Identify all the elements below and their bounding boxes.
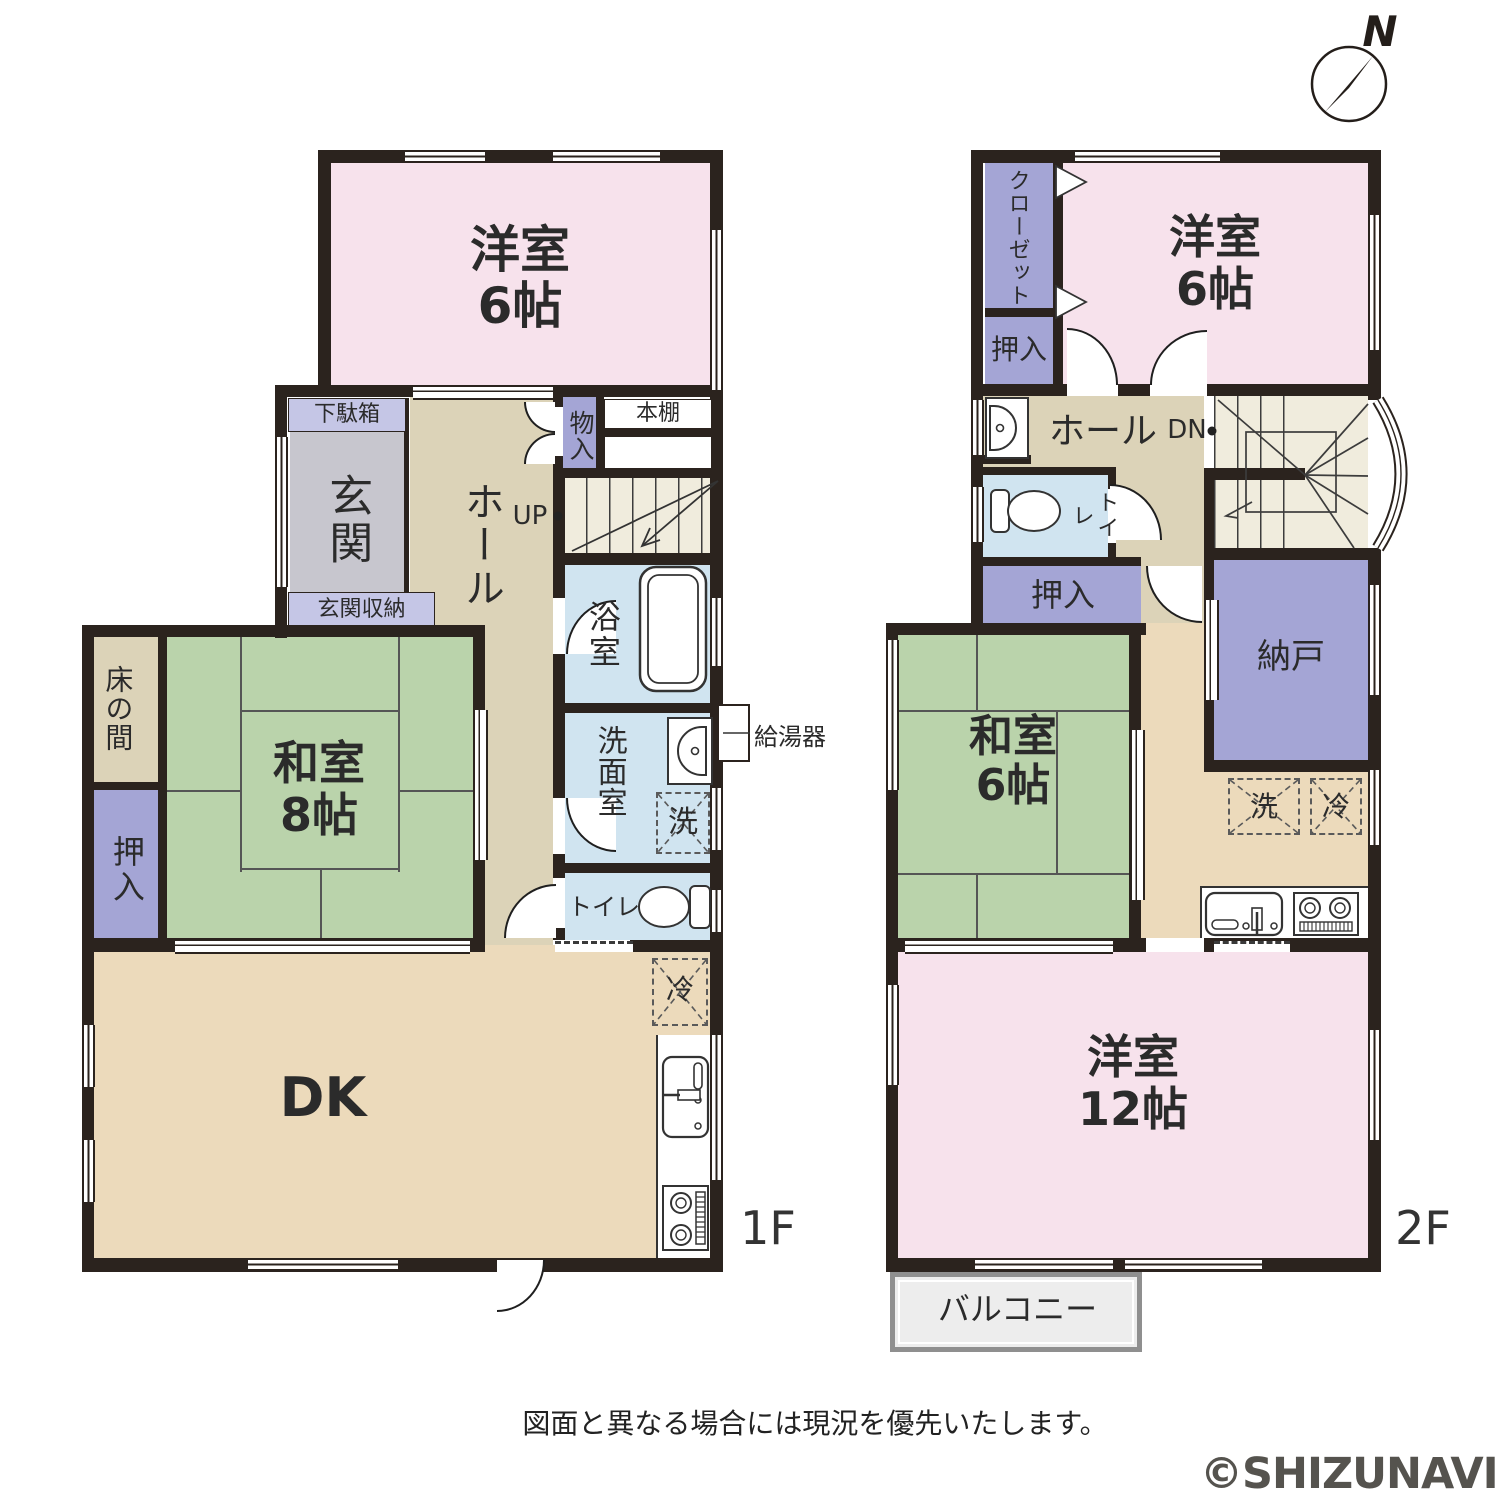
sliding-door <box>1130 730 1145 900</box>
wall <box>553 385 723 397</box>
window <box>1368 215 1381 350</box>
window <box>1368 585 1381 695</box>
room-label-dk: DK <box>268 1068 378 1128</box>
room-label-washitsu8: 和室 8帖 <box>229 738 409 841</box>
window <box>710 230 723 390</box>
room-1f-dk <box>94 945 710 1258</box>
wall <box>318 385 418 397</box>
stairs-1f-treads <box>563 478 710 553</box>
room-label-balcony: バルコニー <box>925 1292 1110 1328</box>
washer-label-1f: 洗 <box>656 806 710 840</box>
wall <box>985 308 1053 317</box>
entrance-window <box>275 437 288 587</box>
window <box>971 400 984 455</box>
window <box>710 1035 723 1180</box>
wall <box>158 630 167 940</box>
wall <box>563 863 710 873</box>
window <box>710 598 723 666</box>
room-label-hondana: 本棚 <box>606 402 710 427</box>
stair-closet-box <box>604 436 712 469</box>
wall <box>1204 760 1381 772</box>
water-heater-label: 給湯器 <box>754 724 864 751</box>
stairs-2f-treads <box>1214 480 1306 548</box>
room-label-hall-1f: ホール <box>458 455 503 635</box>
room-label-nando: 納戸 <box>1233 638 1349 676</box>
tatami-line <box>320 870 322 938</box>
room-label-getabako: 下駄箱 <box>290 403 404 428</box>
stairs-2f-treads <box>1214 396 1306 468</box>
wall <box>563 703 710 713</box>
wall <box>983 557 1141 566</box>
sliding-door <box>473 710 488 860</box>
room-label-oshiire-top-2f: 押入 <box>983 334 1055 365</box>
door-opening <box>553 598 565 654</box>
window <box>82 1025 95 1087</box>
door-opening <box>1146 938 1204 952</box>
room-label-oshiire-2f: 押入 <box>1013 578 1113 614</box>
room-label-hall-2f: ホール <box>1048 412 1158 452</box>
window <box>886 985 899 1085</box>
water-heater-box <box>717 704 750 762</box>
window <box>710 788 723 850</box>
window <box>975 1258 1113 1271</box>
wall <box>553 553 710 565</box>
wall <box>94 782 160 790</box>
tatami-line <box>242 710 398 712</box>
open-boundary <box>555 941 633 952</box>
room-label-closet-2f: クローゼット <box>1004 168 1029 308</box>
compass-icon <box>1312 47 1386 121</box>
sliding-door <box>1204 600 1219 700</box>
wall <box>630 940 723 952</box>
room-label-western6-2f: 洋室 6帖 <box>1115 212 1315 315</box>
open-boundary <box>1214 941 1290 952</box>
room-label-bath: 浴室 <box>584 592 620 677</box>
window <box>1075 150 1220 163</box>
wall <box>973 384 1067 396</box>
compass-north-label: N <box>1358 8 1402 55</box>
wall <box>553 468 723 478</box>
wall <box>1118 384 1150 396</box>
wall <box>82 625 485 637</box>
stairs-up-label: UP <box>506 502 554 531</box>
room-label-western6-1f: 洋室 6帖 <box>420 222 620 334</box>
tatami-line <box>898 873 1129 875</box>
window <box>1368 1030 1381 1140</box>
room-label-monoire: 物入 <box>566 405 594 467</box>
tatami-line <box>976 873 978 938</box>
sliding-door <box>175 939 470 954</box>
fridge-label-1f: 冷 <box>652 974 708 1005</box>
door-opening <box>553 798 565 854</box>
room-label-tokonoma: 床の間 <box>102 648 133 768</box>
window <box>1368 770 1381 845</box>
room-2f-kitchen-l <box>1141 623 1204 938</box>
washer-label-2f: 洗 <box>1228 791 1300 822</box>
window <box>710 890 723 932</box>
wall <box>604 429 712 436</box>
wall <box>886 623 1146 635</box>
room-label-washitsu6-2f: 和室 6帖 <box>923 712 1103 811</box>
wall <box>983 455 1031 464</box>
window <box>405 150 485 163</box>
tatami-line <box>976 635 978 712</box>
room-label-genkan-shuno: 玄関収納 <box>290 598 433 623</box>
back-door <box>497 1260 545 1312</box>
watermark: ©SHIZUNAVI <box>1200 1450 1495 1498</box>
window <box>82 1140 95 1202</box>
room-label-oshiire-1f: 押入 <box>108 822 144 917</box>
room-label-western12: 洋室 12帖 <box>1033 1032 1233 1135</box>
disclaimer-text: 図面と異なる場合には現況を優先いたします。 <box>500 1408 1130 1439</box>
room-label-genkan: 玄関 <box>322 440 371 600</box>
room-label-washroom: 洗面室 <box>592 714 626 829</box>
wall <box>318 150 723 163</box>
kitchen-counter-2f <box>1200 886 1368 938</box>
wall <box>596 397 604 468</box>
floor-plan-canvas: 洋室 6帖 下駄箱 玄関 玄関収納 ホール 物入 本棚 UP 浴室 洗面室 洗 … <box>0 0 1500 1500</box>
sliding-door <box>413 385 553 400</box>
floor-label-1f: 1F <box>733 1203 803 1255</box>
bay-window-gap <box>1368 400 1381 548</box>
room-label-toilet-1f: トイレ <box>566 894 642 921</box>
window <box>553 150 660 163</box>
kitchen-counter-1f <box>656 1035 710 1258</box>
wall <box>983 467 1116 475</box>
wall <box>1207 384 1381 396</box>
room-label-toilet-2f: トイレ <box>1068 480 1117 552</box>
floor-label-2f: 2F <box>1388 1203 1458 1255</box>
wall <box>1204 468 1305 480</box>
wall <box>82 1258 723 1272</box>
wall <box>318 150 331 397</box>
window <box>248 1258 398 1271</box>
wall <box>1204 548 1381 560</box>
window <box>971 487 984 542</box>
window <box>1125 1258 1262 1271</box>
bay-window-icon <box>1378 400 1401 548</box>
tatami-line <box>400 790 473 792</box>
stairs-dn-label: DN <box>1162 416 1212 445</box>
sliding-door <box>905 939 1113 954</box>
window <box>886 640 899 790</box>
fridge-label-2f: 冷 <box>1310 791 1362 822</box>
